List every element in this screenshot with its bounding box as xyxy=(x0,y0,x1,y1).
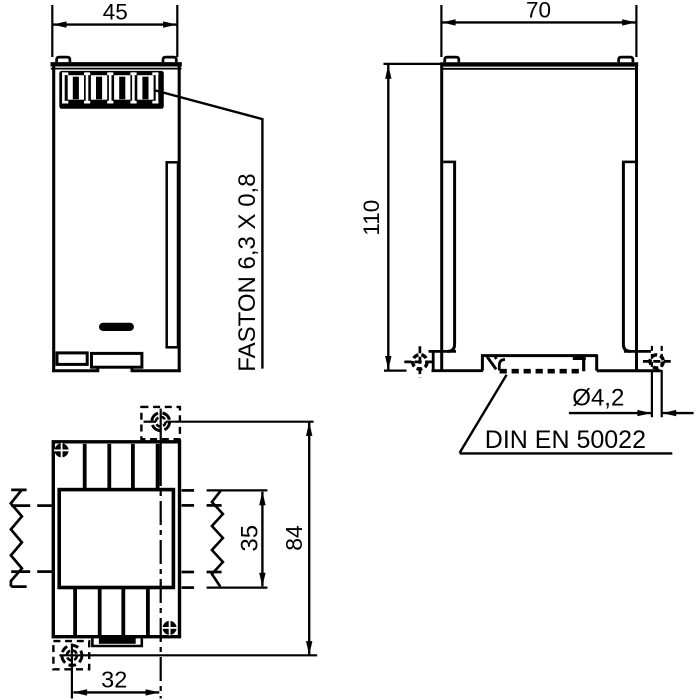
svg-text:45: 45 xyxy=(103,0,128,24)
svg-text:110: 110 xyxy=(359,200,384,236)
svg-text:70: 70 xyxy=(526,0,551,23)
svg-text:35: 35 xyxy=(237,525,264,552)
svg-text:DIN EN 50022: DIN EN 50022 xyxy=(485,426,646,454)
svg-text:FASTON 6,3 X 0,8: FASTON 6,3 X 0,8 xyxy=(234,173,261,371)
svg-text:32: 32 xyxy=(101,667,127,693)
svg-text:84: 84 xyxy=(281,525,307,551)
svg-text:Ø4,2: Ø4,2 xyxy=(572,385,624,412)
